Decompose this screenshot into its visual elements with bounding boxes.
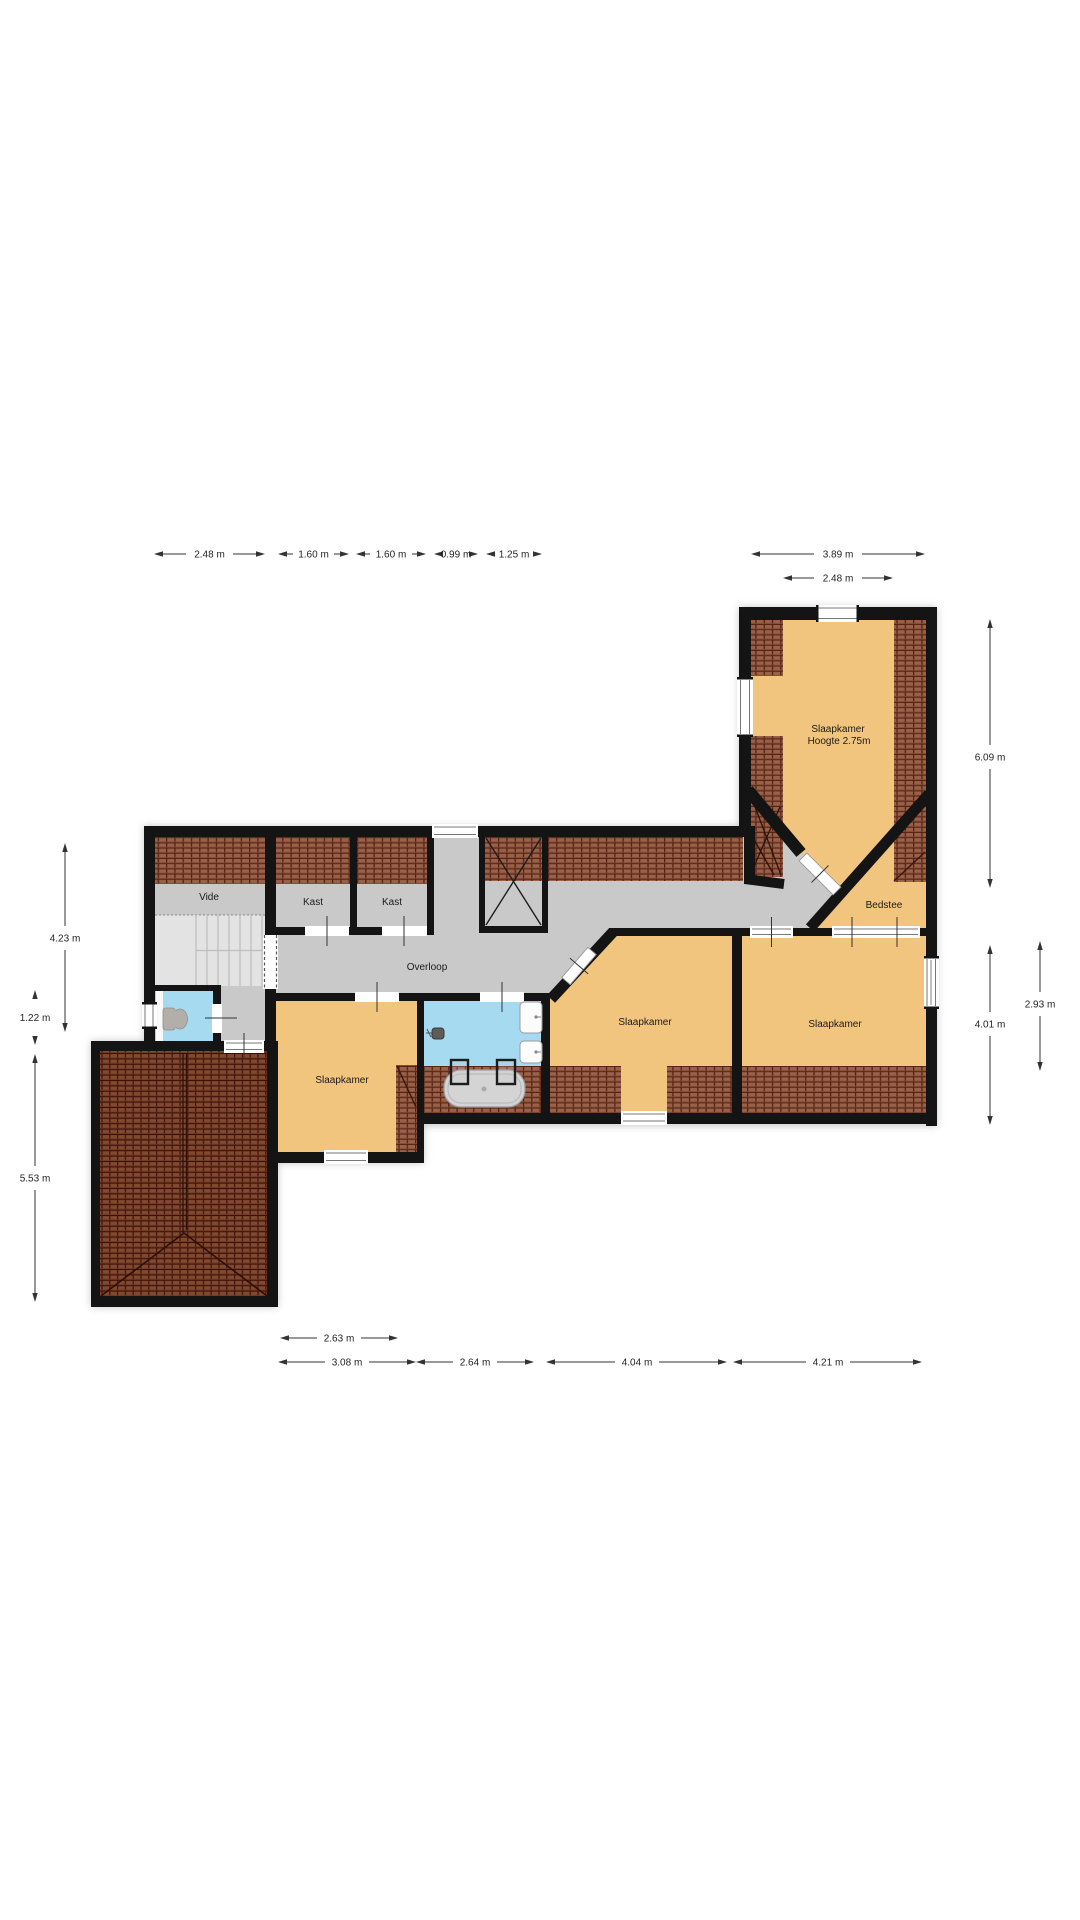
svg-text:2.48 m: 2.48 m — [194, 550, 225, 561]
svg-text:Hoogte 2.75m: Hoogte 2.75m — [808, 736, 871, 747]
svg-text:4.21 m: 4.21 m — [813, 1358, 844, 1369]
svg-text:2.64 m: 2.64 m — [460, 1358, 491, 1369]
svg-text:Slaapkamer: Slaapkamer — [808, 1019, 862, 1030]
svg-text:4.23 m: 4.23 m — [50, 934, 81, 945]
svg-text:Bedstee: Bedstee — [866, 900, 903, 911]
svg-text:3.89 m: 3.89 m — [823, 550, 854, 561]
svg-text:6.09 m: 6.09 m — [975, 753, 1006, 764]
svg-text:Overloop: Overloop — [407, 962, 448, 973]
svg-text:4.04 m: 4.04 m — [622, 1358, 653, 1369]
svg-text:Vide: Vide — [199, 892, 219, 903]
svg-text:Slaapkamer: Slaapkamer — [315, 1075, 369, 1086]
svg-text:1.60 m: 1.60 m — [376, 550, 407, 561]
svg-text:5.53 m: 5.53 m — [20, 1174, 51, 1185]
svg-text:2.63 m: 2.63 m — [324, 1334, 355, 1345]
svg-text:Slaapkamer: Slaapkamer — [618, 1017, 672, 1028]
svg-text:1.22 m: 1.22 m — [20, 1013, 51, 1024]
svg-text:Kast: Kast — [382, 897, 402, 908]
svg-text:0.99 m: 0.99 m — [441, 550, 472, 561]
svg-text:4.01 m: 4.01 m — [975, 1020, 1006, 1031]
svg-text:Kast: Kast — [303, 897, 323, 908]
svg-text:3.08 m: 3.08 m — [332, 1358, 363, 1369]
svg-text:Slaapkamer: Slaapkamer — [811, 724, 865, 735]
svg-text:2.93 m: 2.93 m — [1025, 1000, 1056, 1011]
svg-text:1.60 m: 1.60 m — [298, 550, 329, 561]
svg-text:2.48 m: 2.48 m — [823, 574, 854, 585]
svg-text:1.25 m: 1.25 m — [499, 550, 530, 561]
